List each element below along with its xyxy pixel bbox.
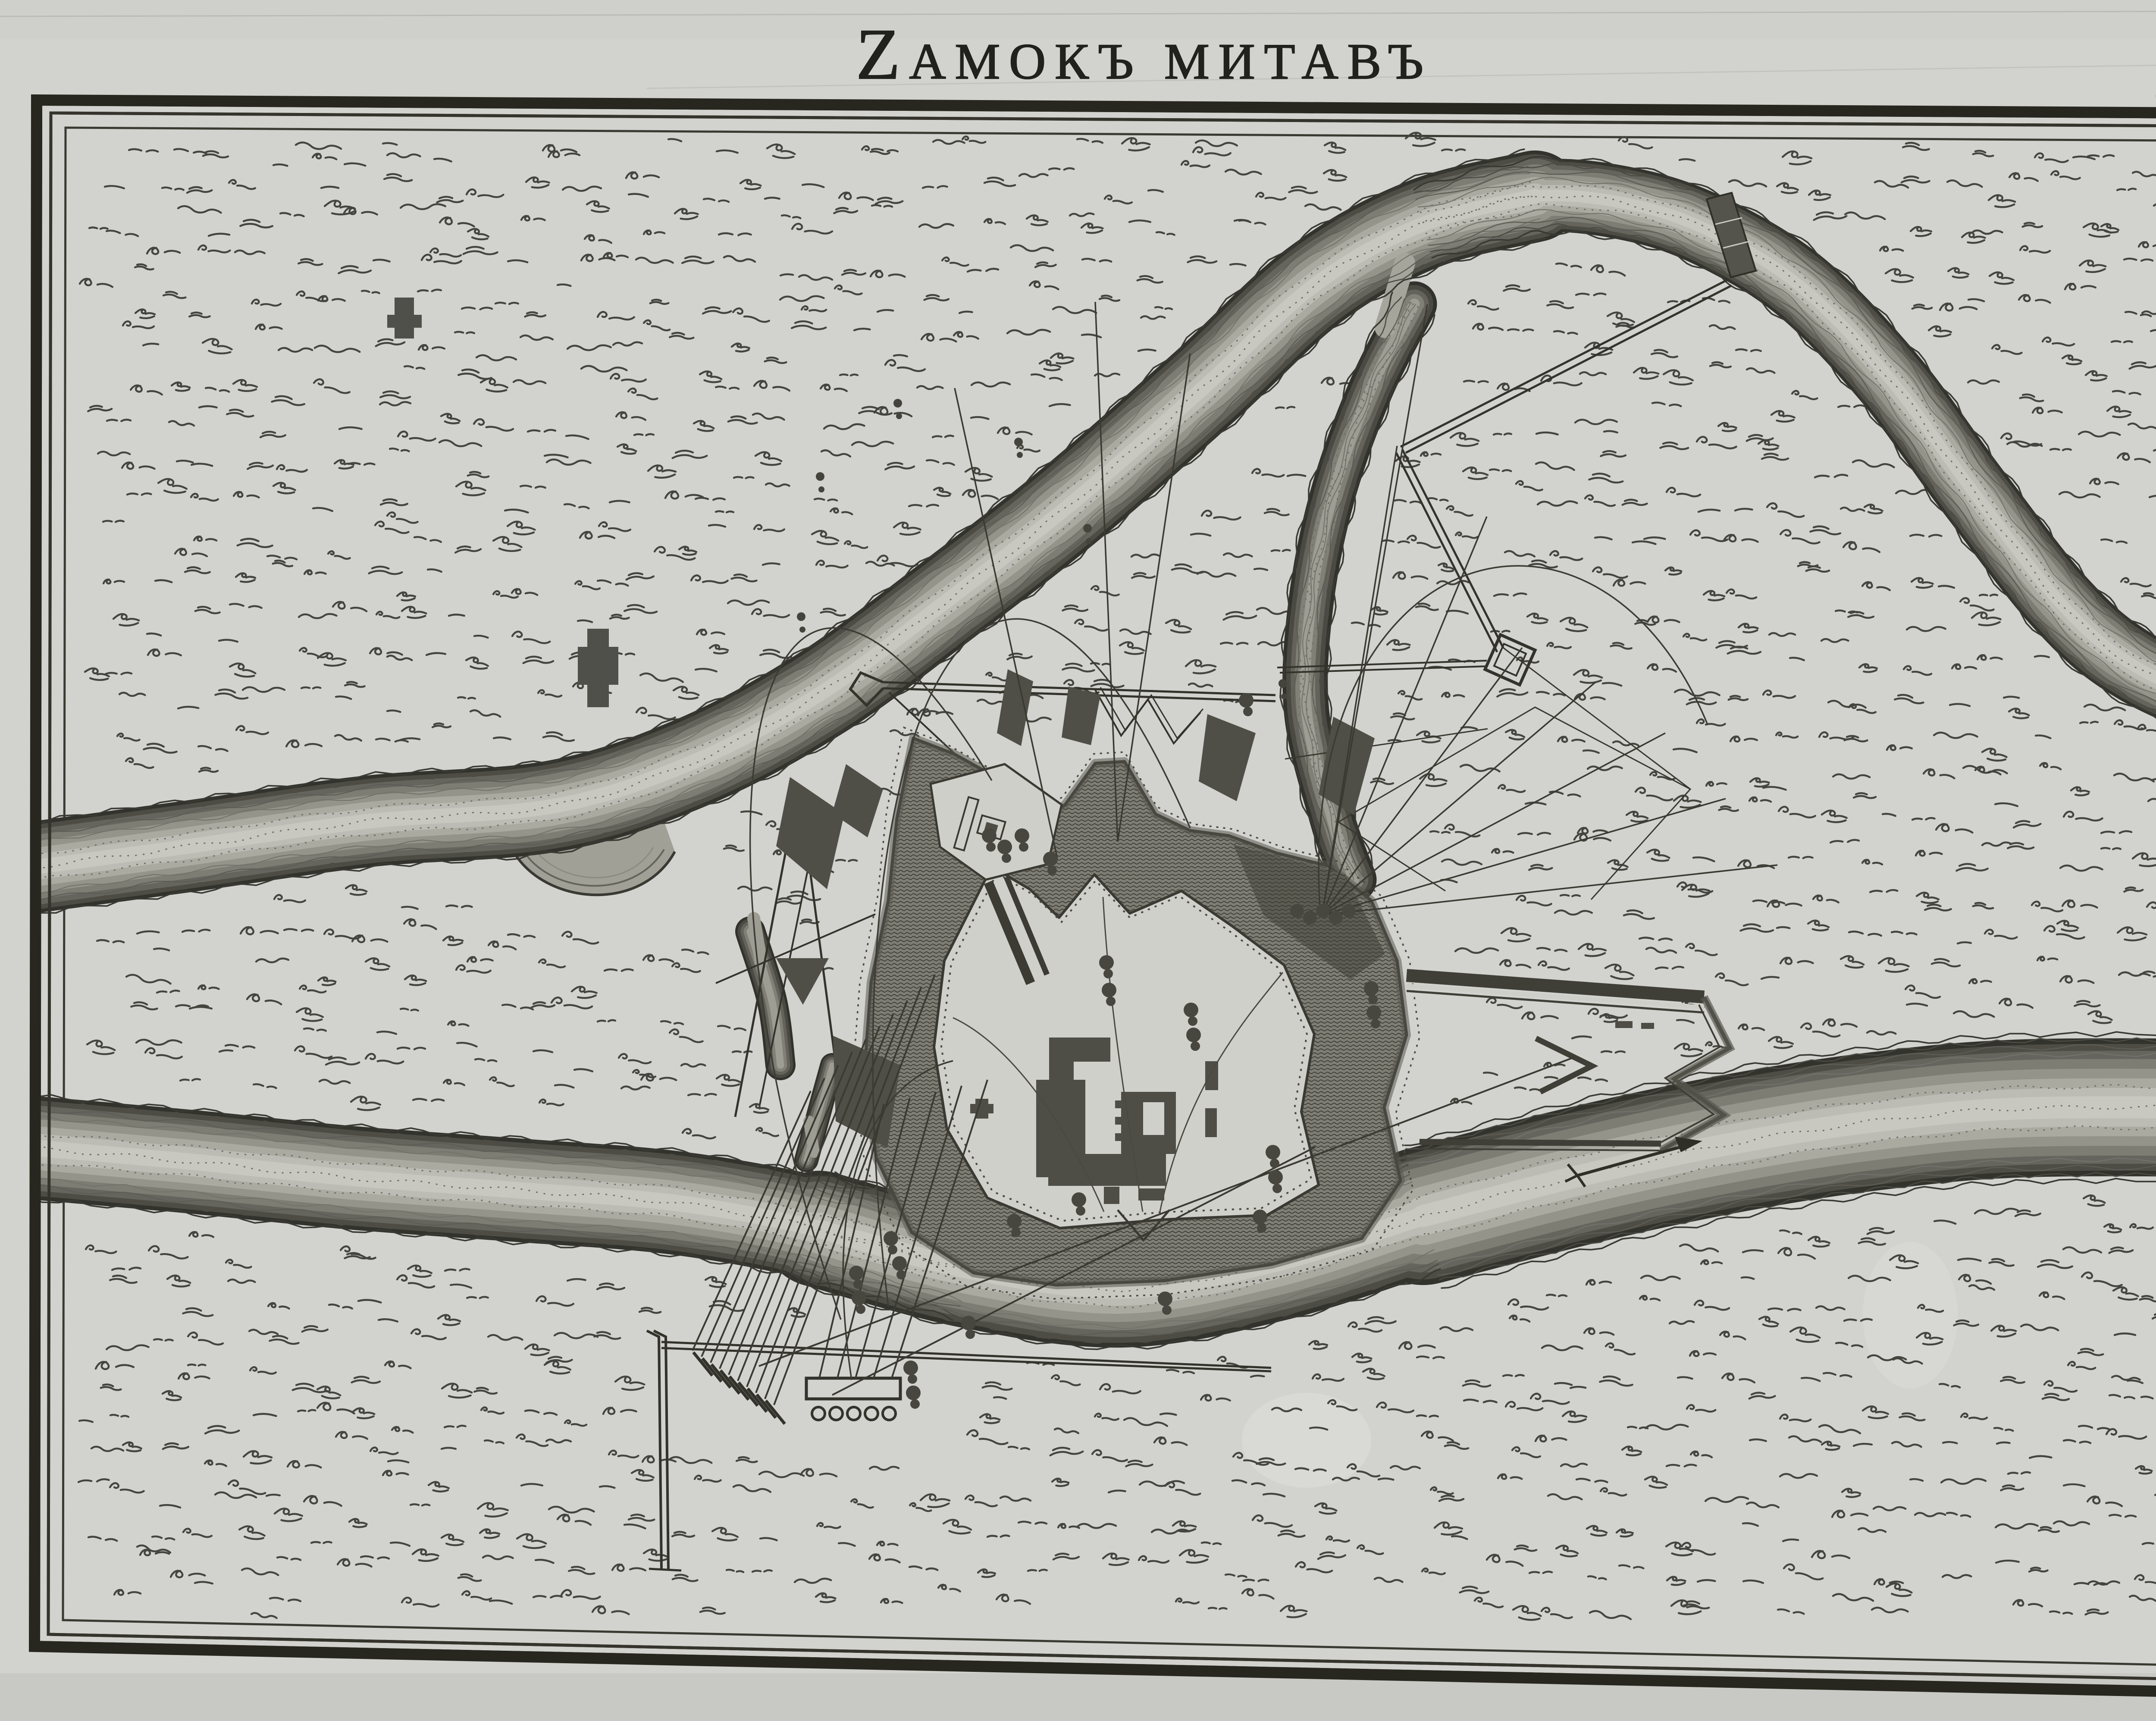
svg-text:6: 6	[2154, 62, 2156, 118]
